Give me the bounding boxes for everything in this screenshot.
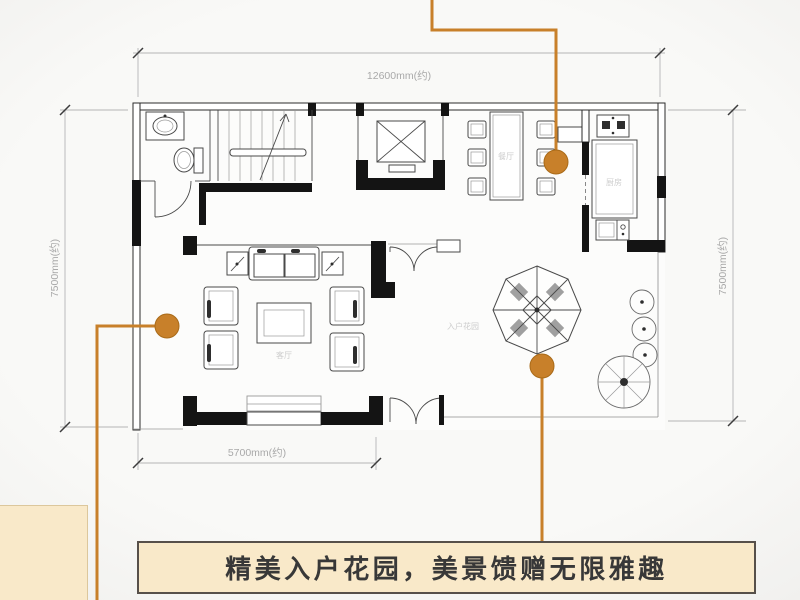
armchair-icon — [204, 331, 238, 369]
sideboard — [558, 127, 584, 142]
living-room-label: 客厅 — [276, 350, 292, 360]
stair-handrail — [230, 149, 306, 156]
sofa-icon — [249, 247, 319, 280]
shrub-icon — [630, 290, 657, 367]
armchair-icon — [330, 287, 364, 325]
garden-label: 入户花园 — [447, 321, 479, 331]
page: 餐厅 厨房 — [0, 0, 800, 600]
side-table-icon — [227, 252, 248, 275]
partial-caption-box — [0, 505, 88, 600]
armchair-icon — [330, 333, 364, 371]
window — [247, 396, 321, 411]
caption-banner: 精美入户花园，美景馈赠无限雅趣 — [137, 541, 756, 594]
toilet-icon — [174, 148, 203, 173]
patio-umbrella-icon — [493, 266, 581, 354]
coffee-table — [257, 303, 311, 343]
callout-dot-dining — [544, 150, 568, 174]
washbasin-icon — [146, 112, 184, 140]
armchair-icon — [204, 287, 238, 325]
dining-room-label: 餐厅 — [498, 152, 514, 161]
floor-plan-svg: 餐厅 厨房 — [0, 0, 800, 600]
callout-dot-garden — [530, 354, 554, 378]
dim-left-label: 7500mm(约) — [48, 239, 61, 297]
caption-text: 精美入户花园，美景馈赠无限雅趣 — [225, 549, 668, 586]
kitchen-sink-icon — [596, 220, 629, 240]
callout-dot-living — [155, 314, 179, 338]
dim-top-label: 12600mm(约) — [367, 69, 431, 82]
large-shrub-icon — [598, 356, 650, 408]
side-table-icon — [322, 252, 343, 275]
stove-icon — [597, 115, 629, 137]
dim-right-label: 7500mm(约) — [716, 237, 729, 295]
kitchen-label: 厨房 — [606, 177, 622, 187]
dim-bottom-label: 5700mm(约) — [228, 446, 286, 459]
